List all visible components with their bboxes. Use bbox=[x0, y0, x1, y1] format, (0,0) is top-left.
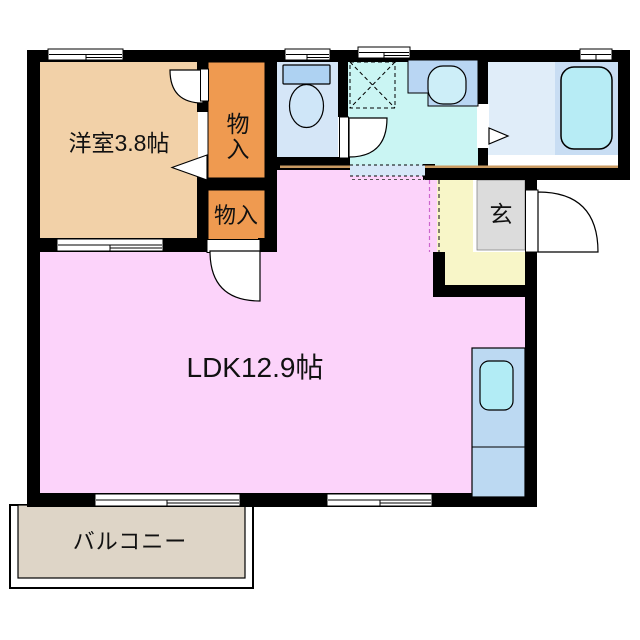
threshold-line bbox=[280, 166, 618, 169]
window-icon bbox=[285, 49, 330, 60]
wall-segment bbox=[275, 157, 350, 170]
open-boundary-strip bbox=[350, 165, 425, 176]
door-opening bbox=[477, 104, 489, 148]
balcony-sliding-door-icon bbox=[327, 494, 432, 506]
wall-segment bbox=[433, 285, 537, 297]
wall-segment bbox=[430, 166, 630, 180]
door-leaf bbox=[201, 69, 209, 101]
window-icon bbox=[358, 47, 410, 58]
storage-lower-label: 物入 bbox=[206, 203, 266, 229]
wall-segment bbox=[197, 50, 208, 70]
wall-segment bbox=[618, 50, 630, 180]
toilet-icon bbox=[283, 65, 330, 84]
door-leaf bbox=[340, 117, 349, 158]
window-icon bbox=[48, 49, 123, 60]
wall-segment bbox=[265, 50, 277, 252]
wall-segment bbox=[258, 238, 277, 252]
balcony-label: バルコニー bbox=[30, 528, 230, 556]
sink-icon bbox=[428, 66, 466, 104]
entrance-door-leaf bbox=[526, 190, 539, 252]
wall-segment bbox=[478, 50, 488, 105]
wall-segment bbox=[338, 62, 348, 117]
balcony-sliding-door-icon bbox=[95, 494, 240, 506]
wall-segment bbox=[27, 50, 40, 507]
toilet-icon bbox=[290, 85, 324, 128]
sliding-partition-icon bbox=[57, 239, 163, 251]
western-room-label: 洋室3.8帖 bbox=[40, 129, 198, 157]
entrance-door-swing-arc bbox=[538, 192, 598, 252]
genkan-label: 玄 bbox=[477, 200, 525, 228]
ldk-label: LDK12.9帖 bbox=[140, 351, 370, 384]
wall-segment bbox=[478, 148, 488, 180]
floorplan: 洋室3.8帖 物入 物入 LDK12.9帖 玄 バルコニー bbox=[0, 0, 640, 640]
window-icon bbox=[580, 49, 612, 60]
storage-upper-label: 物入 bbox=[219, 94, 253, 180]
bathtub-icon bbox=[561, 67, 612, 149]
kitchen-sink-icon bbox=[480, 361, 513, 410]
